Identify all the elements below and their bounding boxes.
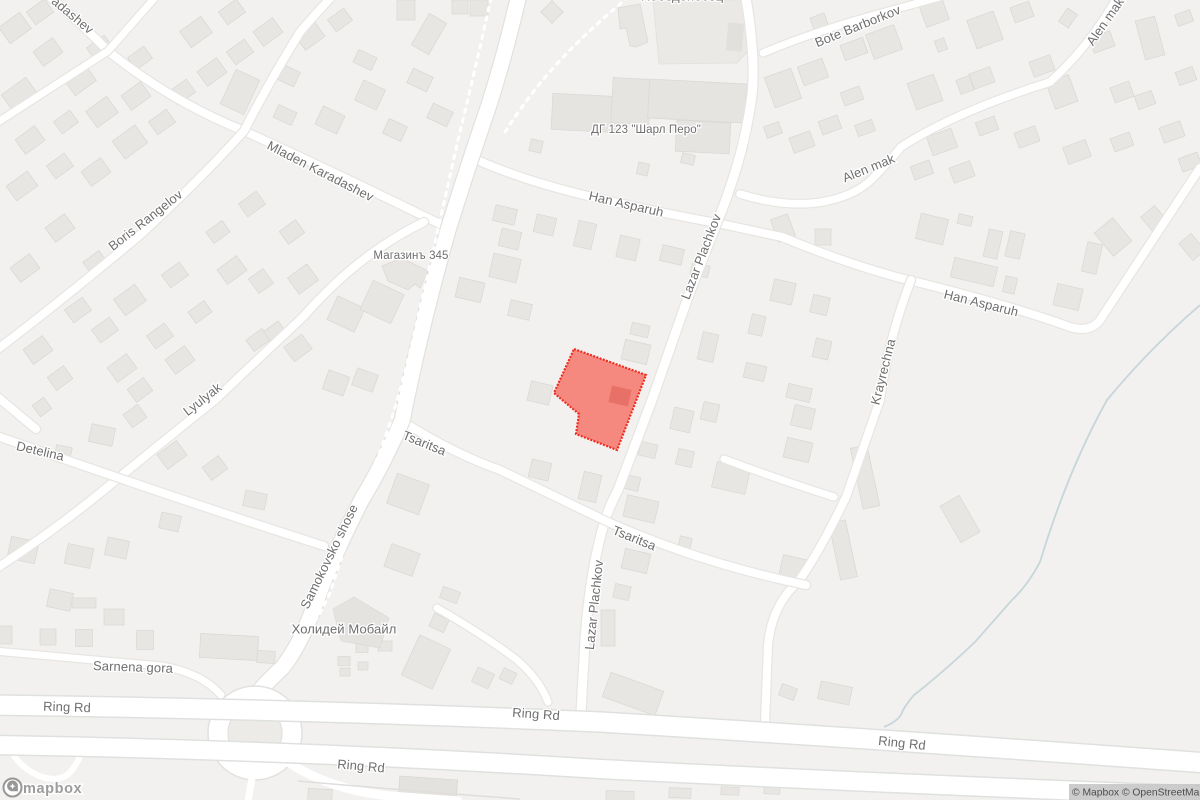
svg-text:© Mapbox © OpenStreetMap: © Mapbox © OpenStreetMap — [1072, 788, 1200, 799]
svg-text:Sarnena gora: Sarnena gora — [93, 658, 174, 676]
svg-text:mapbox: mapbox — [23, 781, 82, 797]
svg-text:Магазинъ 345: Магазинъ 345 — [373, 250, 448, 262]
svg-text:ДГ 123 "Шарл Перо": ДГ 123 "Шарл Перо" — [591, 124, 701, 136]
svg-text:Ring Rd: Ring Rd — [43, 699, 91, 716]
svg-text:Холидей Мобайл: Холидей Мобайл — [292, 621, 397, 636]
svg-text:Победоносец: Победоносец — [641, 0, 724, 3]
